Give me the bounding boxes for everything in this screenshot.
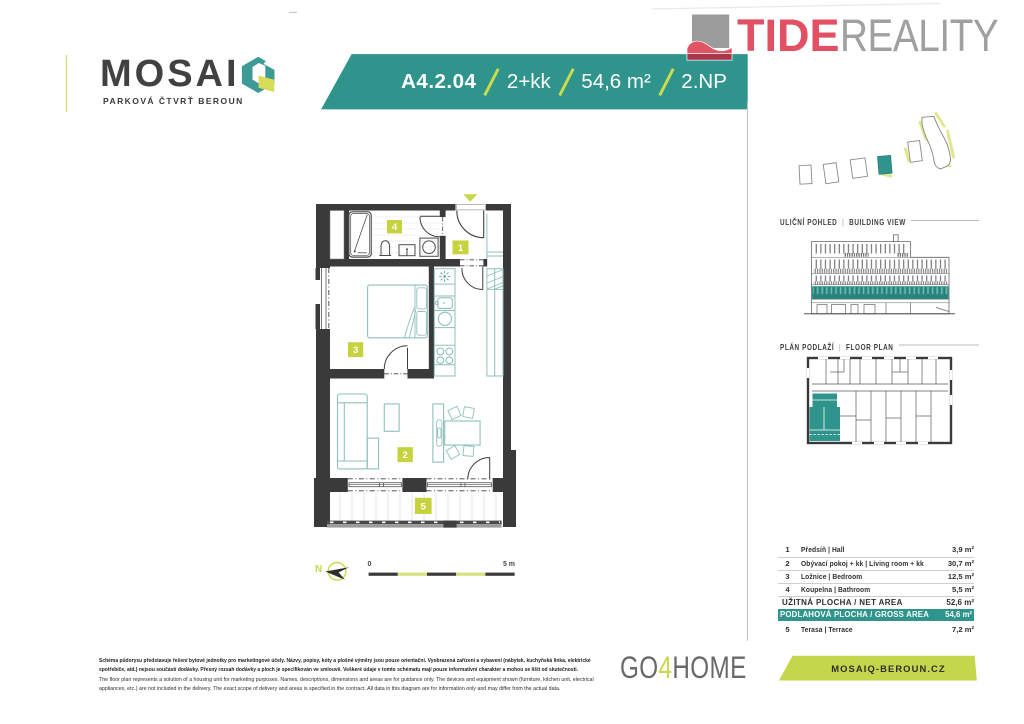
svg-text:2: 2 — [402, 450, 407, 461]
svg-text:4: 4 — [392, 222, 398, 233]
svg-text:5: 5 — [421, 501, 427, 512]
svg-text:3: 3 — [353, 345, 358, 356]
svg-text:1: 1 — [458, 243, 464, 254]
